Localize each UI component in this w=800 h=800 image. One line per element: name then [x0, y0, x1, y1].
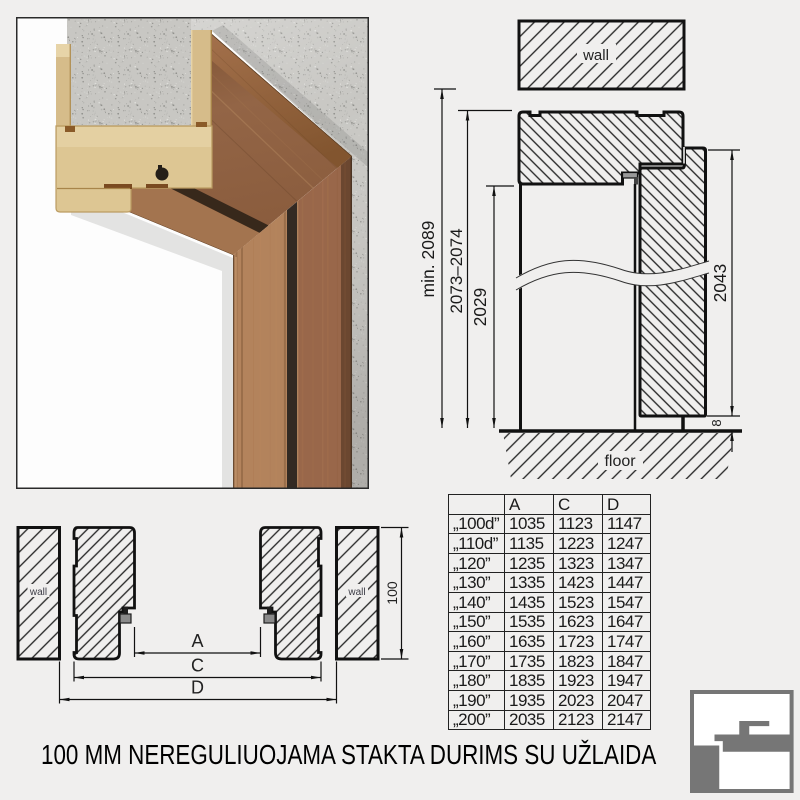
svg-text:min. 2089: min. 2089: [418, 221, 438, 298]
svg-text:2043: 2043: [710, 264, 730, 302]
svg-text:2073–2074: 2073–2074: [447, 228, 466, 313]
svg-text:wall: wall: [347, 587, 365, 598]
svg-text:wall: wall: [29, 587, 47, 598]
svg-text:floor: floor: [604, 453, 636, 470]
svg-text:8: 8: [709, 419, 724, 426]
svg-text:D: D: [191, 678, 204, 698]
svg-text:wall: wall: [582, 47, 609, 64]
svg-text:C: C: [191, 656, 204, 676]
svg-text:A: A: [191, 631, 203, 651]
svg-text:100: 100: [384, 581, 400, 605]
svg-text:2029: 2029: [470, 288, 490, 326]
